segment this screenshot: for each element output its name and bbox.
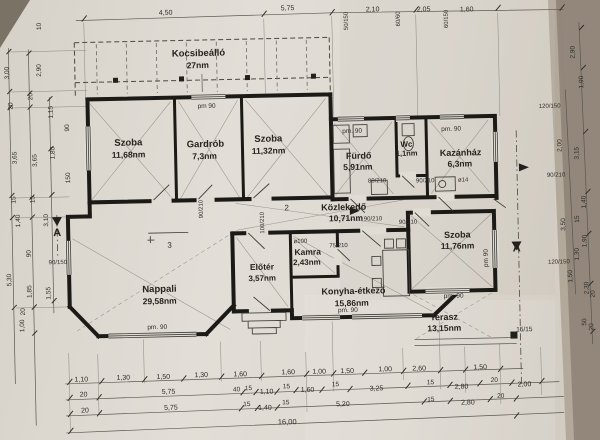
dim-bottom: 1,00: [312, 368, 326, 375]
room-area-eloter: 3,57nm: [248, 274, 276, 284]
room-name-szoba-3: Szoba: [444, 229, 472, 240]
room-name-wc: Wc: [400, 140, 413, 149]
room-name-eloter: Előtér: [250, 262, 275, 273]
window-parapet-label: pm 90: [197, 103, 216, 110]
dim-left: 15: [29, 196, 36, 204]
dim-left: 20: [20, 308, 27, 316]
vent-label: ø100: [294, 239, 308, 245]
door-size-label: 75/210: [329, 243, 348, 249]
carport-post: [245, 75, 250, 80]
room-area-terasz: 13,15nm: [427, 323, 462, 334]
dim-right: 2,90: [569, 45, 576, 58]
floor-plan-svg: Kocsibeálló27nmSzoba11,68nmGardrób7,3nmS…: [0, 0, 600, 440]
room-area-gardrob: 7,3nm: [192, 151, 217, 162]
dim-bottom: 20: [80, 391, 88, 398]
dim-left: 1,40: [15, 214, 22, 227]
dim-bottom: 15: [427, 379, 435, 386]
paper-corner-shadow: [0, 0, 30, 48]
dim-right: 1,30: [574, 247, 581, 260]
dim-left: 90: [26, 250, 33, 258]
room-number-3: 3: [167, 241, 172, 250]
dim-right: 1,40: [581, 195, 588, 208]
dim-left: 2,90: [36, 64, 43, 77]
section-marker-a-left: A: [53, 227, 61, 239]
section-marker-a-right: A: [513, 242, 521, 254]
carport-post: [179, 76, 184, 81]
dim-right: 1,90: [581, 234, 588, 247]
dim-left: 20: [7, 102, 14, 110]
dim-bottom: 1,60: [281, 369, 295, 376]
dim-bottom: 2,00: [518, 381, 532, 388]
room-name-terasz: Terasz: [430, 312, 459, 323]
dim-top: 2,05: [417, 6, 431, 13]
room-area-furdo: 5,91nm: [343, 161, 373, 172]
dim-bottom: 1,50: [473, 364, 487, 371]
dim-bottom: 1,60: [301, 387, 315, 394]
dim-bottom-total: 16,00: [278, 417, 297, 426]
dim-left: 15: [10, 196, 17, 204]
door-size-label: 100/210: [260, 211, 266, 233]
dim-right: 3,15: [574, 146, 581, 159]
dim-left: 1,55: [45, 286, 52, 299]
dim-bottom: 5,75: [162, 389, 176, 396]
room-area-wc: 1,1nm: [396, 149, 418, 158]
room-name-kazanhaz: Kazánház: [440, 147, 482, 158]
dim-bottom: 15: [282, 399, 290, 406]
room-area-kamra: 2,43nm: [293, 258, 321, 268]
dim-bottom: 1,10: [74, 376, 88, 383]
room-name-furdo: Fürdő: [346, 150, 372, 161]
room-area-szoba-3: 11,76nm: [441, 240, 475, 251]
room-name-szoba-1: Szoba: [114, 137, 143, 149]
dim-bottom: 15: [245, 385, 253, 392]
dim-bottom: 5,75: [164, 405, 178, 412]
dim-bottom: 1,30: [194, 372, 208, 379]
floor-plan-photo: Kocsibeálló27nmSzoba11,68nmGardrób7,3nmS…: [0, 0, 600, 440]
dim-bottom: 20: [491, 377, 499, 384]
dim-bottom: 15: [332, 381, 340, 388]
window-parapet-label: pm. 90: [338, 307, 358, 314]
dim-left: 3,65: [11, 151, 18, 164]
dim-right: 50: [581, 318, 588, 326]
dim-right: 15: [574, 215, 581, 223]
photo-background: [0, 0, 600, 440]
dim-left: 5,30: [6, 273, 13, 286]
dim-bottom: 5,20: [336, 401, 350, 408]
window-size-label: 120/150: [539, 104, 561, 110]
room-name-konyha: Konyha-étkező: [321, 285, 386, 296]
dim-bottom: 1,10: [260, 389, 274, 396]
dim-bottom: 15: [243, 401, 251, 408]
door-size-label: 90/210: [399, 220, 418, 226]
dim-left: 20: [27, 93, 34, 101]
dim-left: 1,00: [19, 319, 26, 332]
dim-left: 150: [65, 172, 72, 183]
window-size-label: 50/150: [344, 11, 350, 30]
dim-left: 3,00: [4, 66, 11, 79]
door-size-label: 90/210: [416, 178, 435, 184]
dim-bottom: 1,30: [116, 375, 130, 382]
dim-bottom: 1,50: [156, 374, 170, 381]
window-size-label: 90/150: [49, 260, 68, 266]
door-size-label: 90/210: [199, 199, 205, 218]
door-size-label: 90/210: [364, 216, 383, 222]
room-name-gardrob: Gardrób: [187, 139, 225, 151]
post-size-label: 15/15: [516, 326, 533, 333]
room-name-nappali: Nappali: [142, 284, 177, 296]
dim-left: 3,65: [32, 154, 39, 167]
room-area-nappali: 29,58nm: [143, 296, 178, 307]
room-area-szoba-2: 11,32nm: [252, 145, 286, 156]
room-area-kocsibeallo: 27nm: [187, 60, 210, 70]
room-name-kozlekedo: Közlekedő: [321, 202, 367, 213]
window-parapet-label: pm. 90: [444, 293, 464, 300]
window-parapet-label: pm. 90: [342, 128, 362, 135]
room-area-kozlekedo: 10,71nm: [329, 213, 364, 224]
flue-label: ø14: [458, 177, 469, 183]
room-area-kazanhaz: 6,3nm: [447, 158, 472, 169]
room-number-2: 2: [284, 203, 289, 212]
dim-right: 3,50: [560, 218, 567, 231]
carport-post: [113, 78, 118, 83]
dim-left: 10: [36, 22, 43, 30]
dim-left: 1,85: [26, 285, 33, 298]
window-size-label: 60/150: [444, 9, 450, 28]
room-area-szoba-1: 11,68nm: [112, 149, 146, 160]
dim-left: 3,10: [43, 214, 50, 227]
dim-bottom: 20: [81, 407, 89, 414]
dim-bottom: 1,00: [378, 366, 392, 373]
dim-left: 1,80: [49, 146, 56, 159]
dim-bottom: 15: [283, 383, 291, 390]
dim-bottom: 1,50: [340, 368, 354, 375]
door-size-label: 90/210: [547, 172, 566, 178]
window-parapet-label: pm 90: [483, 249, 490, 268]
dim-right: 20: [590, 290, 597, 298]
dim-bottom: 1,60: [233, 371, 247, 378]
dim-right: 2,00: [556, 139, 563, 152]
window-parapet-label: pm. 90: [147, 324, 167, 331]
dim-bottom: 40: [233, 386, 241, 393]
window-parapet-label: pm. 90: [441, 126, 461, 133]
dim-right: 20: [588, 323, 595, 331]
window-size-label: 120/150: [548, 259, 570, 265]
dim-top: 1,60: [460, 6, 474, 13]
dim-bottom: 20: [497, 393, 505, 400]
entry-steps: [242, 312, 286, 334]
dim-bottom: 3,25: [370, 385, 384, 392]
dim-top: 2,10: [366, 6, 380, 13]
room-name-kocsibeallo: Kocsibeálló: [172, 48, 226, 60]
dim-right: 1,90: [578, 75, 585, 88]
dim-bottom: 2,80: [461, 399, 475, 406]
room-name-kamra: Kamra: [294, 247, 321, 258]
dim-bottom: 15: [427, 396, 435, 403]
window-size-label: 60/60: [396, 11, 402, 27]
dim-top: 4,50: [159, 10, 173, 17]
room-name-szoba-2: Szoba: [254, 133, 283, 145]
dim-right: 1,50: [567, 270, 574, 283]
dim-left: 1,15: [48, 105, 55, 118]
dim-top: 5,75: [281, 5, 295, 12]
carport-post: [311, 74, 316, 79]
dim-left: 90: [64, 124, 71, 132]
door-size-label: 80/210: [368, 178, 387, 184]
dim-bottom: 2,60: [412, 365, 426, 372]
dim-bottom: 1,40: [258, 405, 272, 412]
dim-bottom: 2,80: [455, 384, 469, 391]
